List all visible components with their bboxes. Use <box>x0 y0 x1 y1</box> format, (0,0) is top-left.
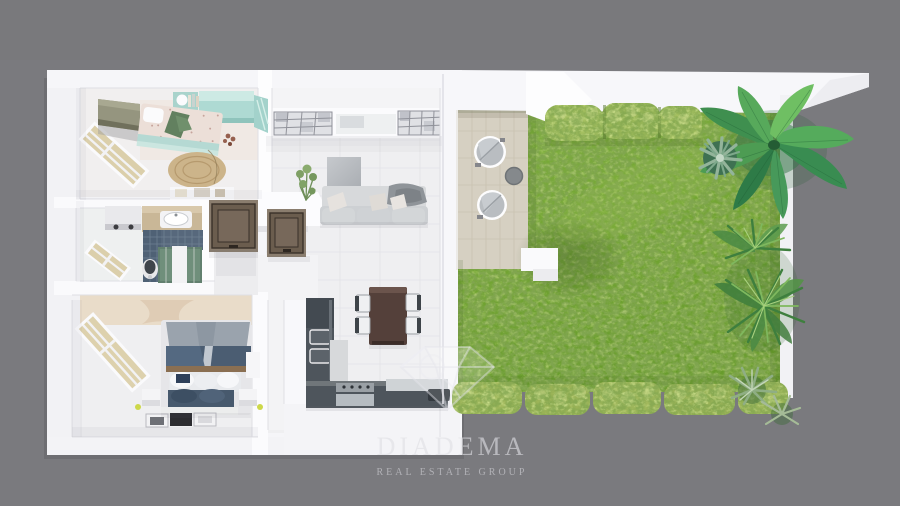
svg-text:REAL ESTATE GROUP: REAL ESTATE GROUP <box>377 467 528 478</box>
svg-text:DIADEMA: DIADEMA <box>377 432 528 461</box>
